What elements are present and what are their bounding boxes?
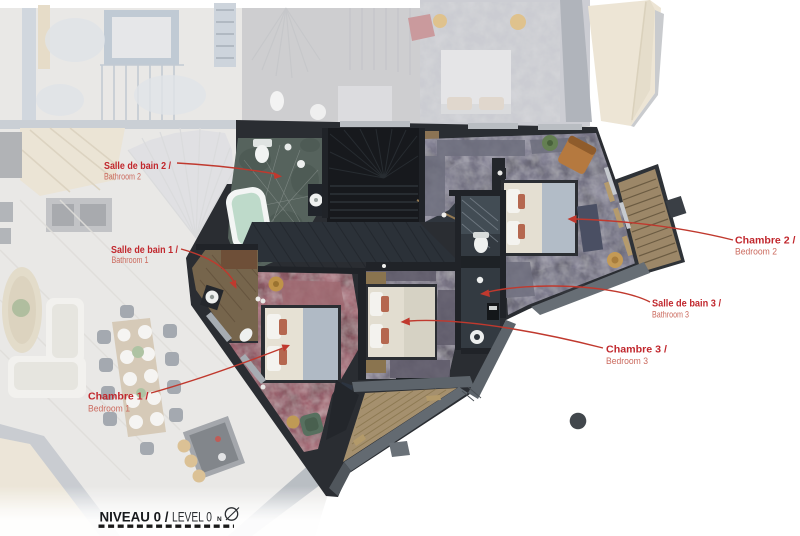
svg-text:Bedroom 2: Bedroom 2 — [735, 247, 777, 258]
svg-text:Bedroom 1: Bedroom 1 — [88, 404, 130, 415]
svg-text:Bathroom 3: Bathroom 3 — [652, 310, 689, 321]
svg-text:Chambre 1 /: Chambre 1 / — [88, 391, 149, 403]
svg-text:Chambre 2 /: Chambre 2 / — [735, 235, 796, 247]
svg-text:Bathroom 1: Bathroom 1 — [112, 255, 149, 266]
svg-text:Salle de bain 1 /: Salle de bain 1 / — [111, 244, 178, 256]
svg-text:Bedroom 3: Bedroom 3 — [606, 356, 648, 367]
svg-text:NIVEAU 0 /: NIVEAU 0 / — [100, 509, 169, 524]
svg-text:Salle de bain 2 /: Salle de bain 2 / — [104, 160, 171, 172]
svg-text:Chambre 3 /: Chambre 3 / — [606, 344, 667, 356]
svg-text:N: N — [217, 516, 222, 523]
svg-text:Bathroom 2: Bathroom 2 — [104, 172, 141, 183]
svg-text:Salle de bain 3 /: Salle de bain 3 / — [652, 298, 721, 310]
svg-text:LEVEL 0: LEVEL 0 — [172, 509, 212, 524]
